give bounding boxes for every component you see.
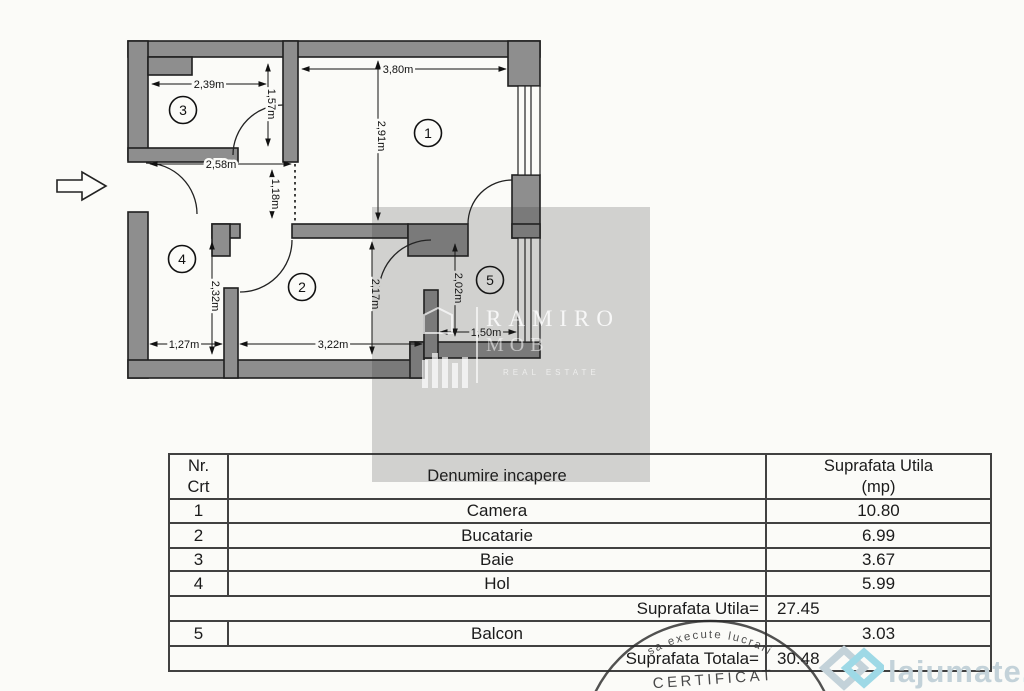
agency-logo-divider [476, 307, 478, 383]
stamp-label: CERTIFICAT [652, 667, 775, 691]
dim-label: 3,22m [318, 339, 349, 351]
table-row: 3Baie3.67 [169, 548, 991, 571]
svg-text:1: 1 [424, 125, 432, 141]
dim-label: 2,39m [194, 79, 225, 91]
header-nr: Nr.Crt [169, 454, 228, 499]
svg-text:sa execute lucrari: sa execute lucrari [646, 629, 775, 658]
scanned-floorplan-page: 2,39m 1,57m 3,80m 2,91m 2,58m 1,18m 2,32… [0, 0, 1024, 691]
room-3-badge: 3 [170, 97, 197, 124]
stamp-arc-text: sa execute lucrari [646, 629, 775, 658]
agency-watermark-overlay: RAMIRO MOB REAL ESTATE [372, 207, 650, 482]
svg-text:3: 3 [179, 102, 187, 118]
dim-label: 2,58m [206, 159, 237, 171]
dim-label: 1,18m [269, 179, 281, 210]
header-area: Suprafata Utila(mp) [766, 454, 991, 499]
site-logo-icon [818, 645, 884, 691]
site-watermark: lajumate.ro [818, 645, 1024, 691]
site-name: lajumate.ro [888, 656, 1024, 687]
door-arc-kitchen [240, 240, 292, 292]
entrance-arrow [57, 172, 106, 200]
svg-text:4: 4 [178, 251, 186, 267]
agency-brand-line2: MOB [486, 334, 550, 357]
agency-logo-icon [414, 305, 494, 405]
room-2-badge: 2 [289, 274, 316, 301]
dim-label: 1,57m [265, 89, 277, 120]
room-4-badge: 4 [169, 246, 196, 273]
dim-label: 2,91m [375, 121, 387, 152]
table-row: 2Bucatarie6.99 [169, 523, 991, 548]
site-name-main: lajumate [888, 654, 1022, 689]
agency-brand-name: RAMIRO [486, 306, 620, 332]
room-1-badge: 1 [415, 120, 442, 147]
table-row: 4Hol5.99 [169, 571, 991, 596]
dim-label: 2,32m [209, 281, 221, 312]
svg-text:2: 2 [298, 279, 306, 295]
window-right-top [518, 86, 540, 175]
table-row: 1Camera10.80 [169, 499, 991, 523]
dim-label: 1,27m [169, 339, 200, 351]
agency-tagline: REAL ESTATE [503, 368, 600, 377]
dim-label: 3,80m [383, 64, 414, 76]
door-arc-entrance [146, 163, 197, 214]
